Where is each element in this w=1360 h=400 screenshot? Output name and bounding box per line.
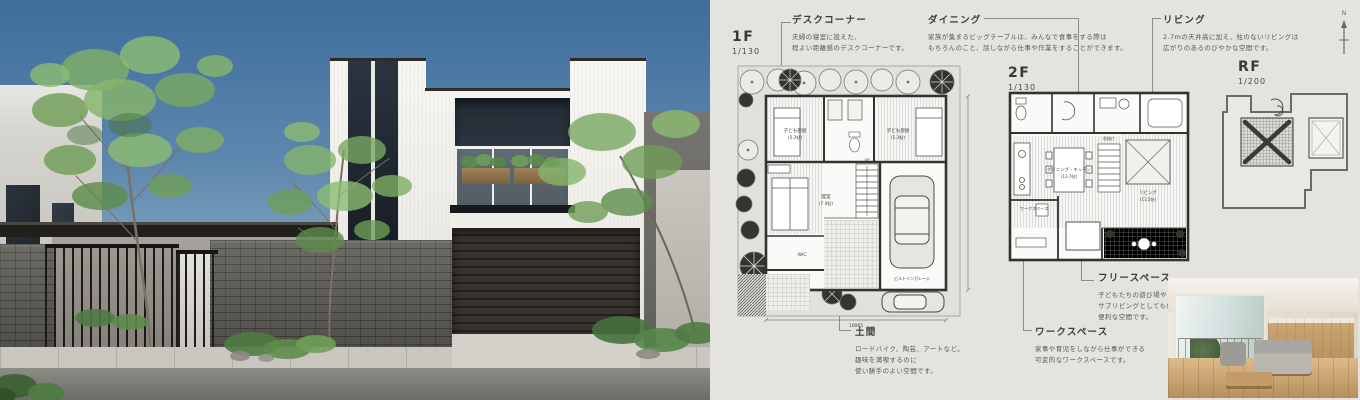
void-square [1126,140,1170,184]
annotation-doma: 土間 ロードバイク、陶芸、アートなど。 趣味を満喫するのに 使い勝手のよい空間で… [855,324,1005,377]
annotation-line: 可変的なワークスペースです。 [1035,355,1185,366]
interior-armchair [1220,342,1246,366]
tree-right [538,110,700,332]
landscaping-trees [0,0,710,400]
svg-text:(5.2帖): (5.2帖) [891,134,905,141]
building-2f [1010,93,1188,260]
annotation-desk-corner: デスクコーナー 夫婦の寝室に設えた、 程よい距離感のデスクコーナーです。 [792,12,942,54]
desk-corner-desk [768,165,790,173]
svg-text:WIC: WIC [797,252,806,258]
stairs-1f [856,164,878,218]
annotation-line: 2.7mの天井高に加え、柱のないリビングは [1163,32,1353,43]
page: 1F 1/130 2F 1/130 RF 1/200 N デスクコーナー 夫婦の… [0,0,1360,400]
toilet-icon [849,132,860,152]
annotation-title: ワークスペース [1035,324,1185,338]
leader-line [839,330,851,331]
svg-text:UP: UP [864,157,870,162]
leader-line [781,22,791,23]
svg-text:(13.7帖): (13.7帖) [1061,173,1077,179]
annotation-line: もちろんのこと、話しながら仕事や作業をすることができます。 [928,43,1168,54]
annotation-line: 家事や育児をしながら仕事ができる [1035,344,1185,355]
annotation-line: 趣味を満喫するのに [855,355,1005,366]
shrubs-right [592,316,710,359]
floor-2f-title: 2F [1008,66,1036,80]
tree-left [30,36,233,346]
svg-text:(7.0帖): (7.0帖) [819,200,833,207]
building-1f [738,96,946,316]
svg-text:子ども部屋: 子ども部屋 [784,127,807,134]
plants-bottom-left [0,374,64,400]
svg-text:ダイニング・キッチン: ダイニング・キッチン [1047,166,1092,173]
floor-plan-1f: 子ども部屋 (5.2帖) 子ども部屋 (5.2帖) 寝室 (7.0帖) WIC … [728,58,978,328]
interior-photo [1168,278,1358,398]
annotation-line: 広がりのあるのびやかな空間です。 [1163,43,1353,54]
annotation-title: デスクコーナー [792,12,942,26]
interior-coffee-table [1226,372,1272,386]
svg-text:吹抜け: 吹抜け [1103,136,1115,141]
floor-rf-scale: 1/200 [1238,77,1266,86]
roof-deck [1241,118,1293,166]
floor-plan-rf [1215,86,1355,214]
annotation-line: 家族が集まるビッグテーブルは、みんなで食事をする際は [928,32,1168,43]
floor-1f-scale: 1/130 [732,47,760,56]
exterior-render-photo [0,0,710,400]
leader-line [984,18,1078,19]
kitchen-icon [1014,143,1030,195]
annotation-work-space: ワークスペース 家事や育児をしながら仕事ができる 可変的なワークスペースです。 [1035,324,1185,366]
svg-text:ビルトインガレージ: ビルトインガレージ [894,275,930,281]
car-on-driveway-icon [882,292,944,312]
annotation-line: 程よい距離感のデスクコーナーです。 [792,43,942,54]
dimension-label: 10065 [849,323,863,328]
car-in-garage-icon [890,176,934,268]
floor-1f-title: 1F [732,30,760,44]
annotation-line: 使い勝手のよい空間です。 [855,366,1005,377]
annotation-line: 夫婦の寝室に設えた、 [792,32,942,43]
floor-rf-title: RF [1238,60,1266,74]
floor-1f-heading: 1F 1/130 [732,30,760,56]
annotation-living: リビング 2.7mの天井高に加え、柱のないリビングは 広がりのあるのびやかな空間… [1163,12,1353,54]
svg-text:リビング: リビング [1139,189,1157,196]
svg-text:子ども部屋: 子ども部屋 [887,127,910,134]
free-space-table [1066,222,1100,250]
annotation-title: ダイニング [928,12,1168,26]
skylight [1309,118,1343,158]
leader-line [1152,18,1161,19]
annotation-line: ロードバイク、陶芸、アートなど。 [855,344,1005,355]
svg-text:(11.5帖): (11.5帖) [1140,196,1156,202]
floor-rf-heading: RF 1/200 [1238,60,1266,86]
svg-text:(5.2帖): (5.2帖) [788,134,802,141]
stairs-2f [1098,144,1120,192]
annotation-title: リビング [1163,12,1353,26]
leader-line [1023,330,1032,331]
floor-plan-2f: ダイニング・キッチン (13.7帖) リビング (11.5帖) ワークスペース … [1002,88,1202,268]
shrubs-front [224,332,336,362]
tree-center [268,122,412,348]
svg-text:寝室: 寝室 [821,193,831,200]
leader-line [1081,280,1094,281]
interior-sofa [1254,340,1312,374]
